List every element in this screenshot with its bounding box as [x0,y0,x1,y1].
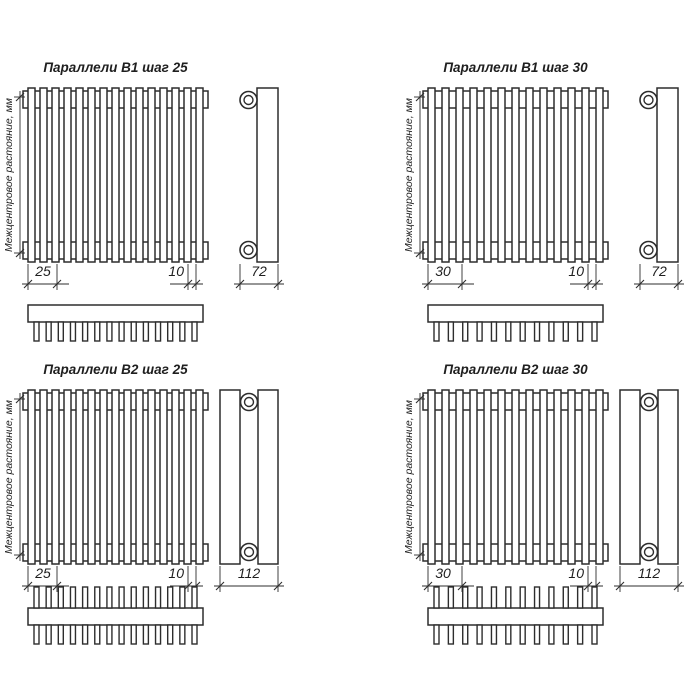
drawing-title: Параллели В2 шаг 30 [428,362,603,377]
tube-width-dimension-value: 10 [552,263,584,279]
depth-dimension-value: 72 [234,263,284,279]
tube-width-dimension-value: 10 [552,565,584,581]
drawing-parallels-b2-step-30: Параллели В2 шаг 30 Межцентровое растоян… [400,302,700,604]
tube-width-dimension-value: 10 [152,565,184,581]
tube-width-dimension-value: 10 [152,263,184,279]
vertical-dimension-label: Межцентровое растояние, мм [3,400,15,554]
pitch-dimension-value: 25 [26,263,60,279]
drawing-title: Параллели В2 шаг 25 [28,362,203,377]
drawing-title: Параллели В1 шаг 25 [28,60,203,75]
vertical-dimension-label: Межцентровое растояние, мм [403,98,415,252]
drawing-title: Параллели В1 шаг 30 [428,60,603,75]
pitch-dimension-value: 25 [26,565,60,581]
vertical-dimension-label: Межцентровое растояние, мм [403,400,415,554]
drawing-parallels-b1-step-30: Параллели В1 шаг 30 Межцентровое растоян… [400,0,700,302]
depth-dimension-value: 72 [634,263,684,279]
drawing-parallels-b1-step-25: Параллели В1 шаг 25 Межцентровое растоян… [0,0,400,302]
vertical-dimension-label: Межцентровое растояние, мм [3,98,15,252]
depth-dimension-value: 112 [219,565,279,581]
pitch-dimension-value: 30 [426,565,460,581]
depth-dimension-value: 112 [619,565,679,581]
radiator-drawing-sheet: Параллели В1 шаг 25 Межцентровое растоян… [0,0,700,700]
drawing-parallels-b2-step-25: Параллели В2 шаг 25 Межцентровое растоян… [0,302,400,604]
pitch-dimension-value: 30 [426,263,460,279]
